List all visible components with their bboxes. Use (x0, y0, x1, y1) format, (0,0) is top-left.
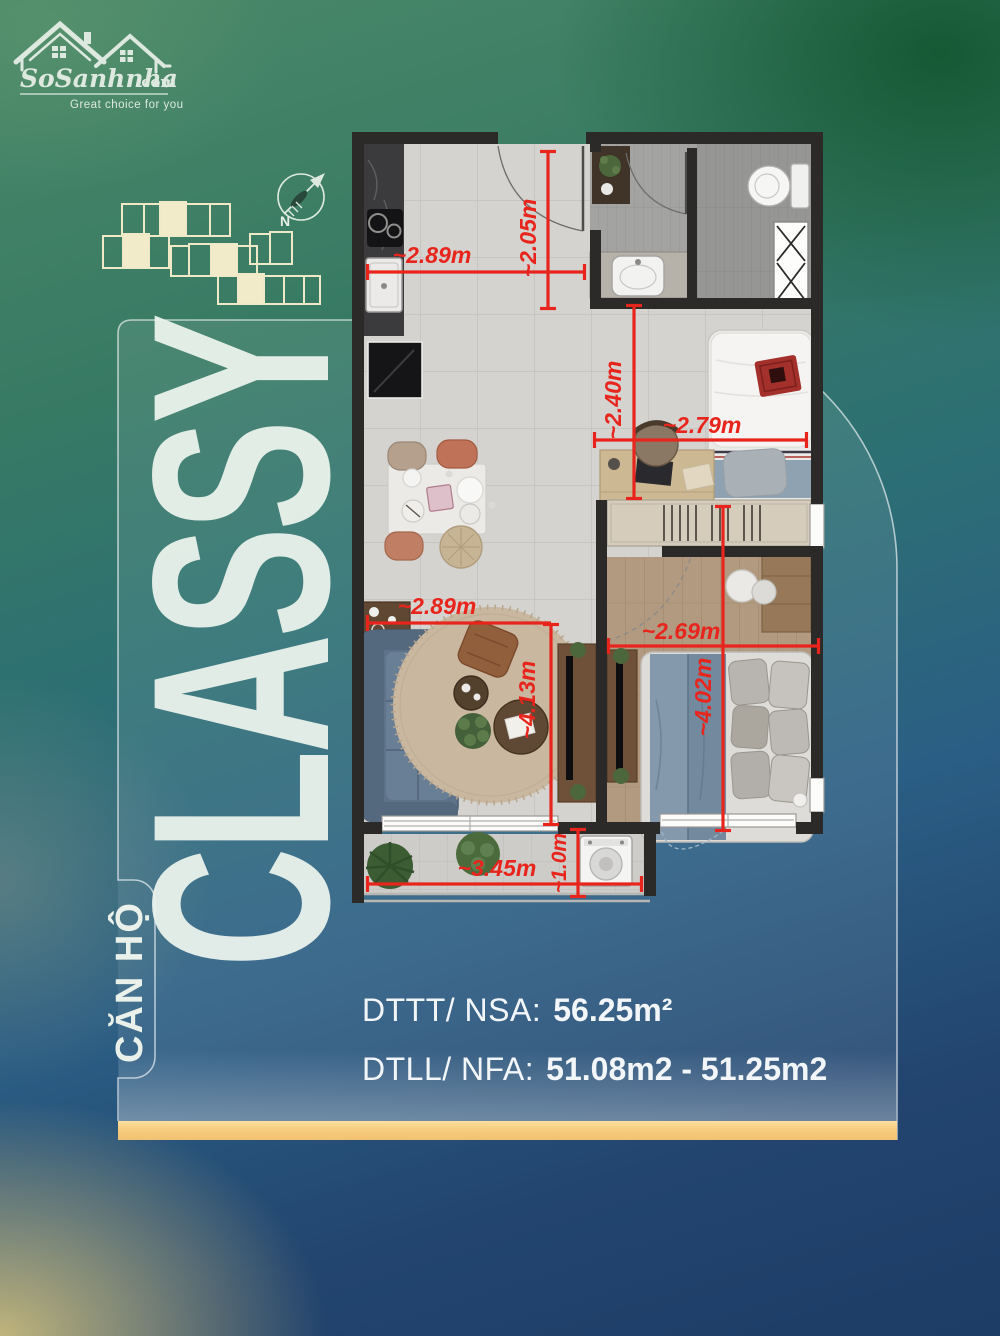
nfa-value: 51.08m2 - 51.25m2 (546, 1051, 827, 1088)
side-window-1 (810, 504, 824, 548)
area-info: DTTT/ NSA: 56.25m² DTLL/ NFA: 51.08m2 - … (362, 992, 827, 1110)
dimension-label: ~1.0m (548, 833, 571, 893)
floor-plan: ~2.05m ~2.89m ~2.40m ~2.79m ~2.89m (352, 132, 824, 903)
living-tv-console (558, 642, 596, 802)
compass: N (278, 173, 325, 229)
nsa-value: 56.25m² (553, 992, 672, 1029)
nfa-row: DTLL/ NFA: 51.08m2 - 51.25m2 (362, 1051, 827, 1088)
vanity-stool-2 (752, 580, 776, 604)
brand-logo: SoSanhnha .com Great choice for you (8, 8, 188, 123)
washing-machine (580, 836, 632, 886)
dimension-label: ~2.89m (393, 242, 472, 268)
dimension-label: ~2.69m (642, 618, 721, 644)
apartment-category: CĂN HỘ (100, 872, 160, 1092)
logo-graphic: SoSanhnha .com Great choice for you (8, 8, 188, 118)
side-window-2 (810, 778, 824, 812)
nsa-row: DTTT/ NSA: 56.25m² (362, 992, 827, 1029)
wardrobe (607, 500, 811, 546)
dimension-label: ~2.79m (663, 412, 742, 438)
bedside-lamp (793, 793, 807, 807)
dimension-label: ~2.05m (515, 199, 541, 278)
accent-bar (118, 1121, 897, 1140)
brand-tagline: Great choice for you (70, 99, 184, 111)
dimension-label: ~3.45m (458, 855, 537, 881)
nfa-label: DTLL/ NFA: (362, 1051, 534, 1088)
dimension-label: ~2.89m (398, 593, 477, 619)
dimension-label: ~2.40m (600, 361, 626, 440)
toilet (748, 164, 809, 208)
dimension-label: ~4.02m (690, 658, 716, 737)
compass-north-label: N (280, 213, 290, 229)
dimension-label: ~4.13m (514, 661, 540, 740)
shower-door (774, 222, 808, 304)
brand-suffix: .com (136, 73, 176, 91)
nsa-label: DTTT/ NSA: (362, 992, 541, 1029)
master-tv-console (607, 648, 637, 784)
